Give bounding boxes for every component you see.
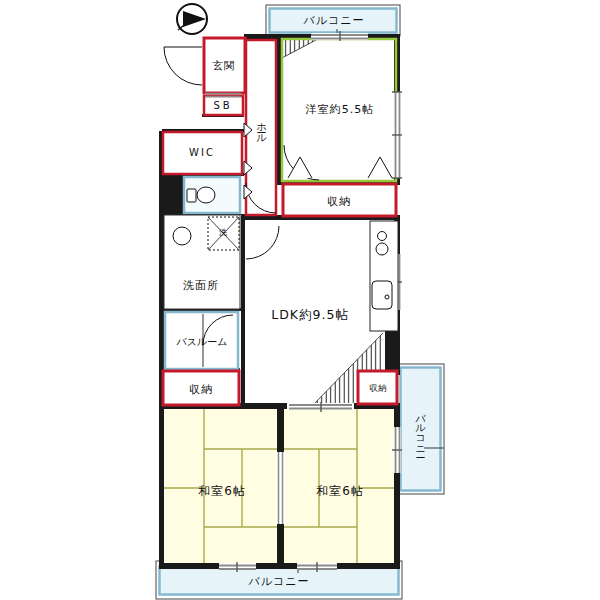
balcony-top-label: バルコニー [303, 15, 364, 26]
washroom-label: 洗面所 [183, 280, 219, 291]
hall-label: ホール [256, 116, 266, 139]
washer-label: 洗 [219, 229, 227, 237]
storage-west-label: 収納 [327, 196, 351, 207]
storage-ldk-label: 収納 [370, 384, 387, 393]
folding-closet-doors [288, 157, 392, 178]
balcony-right-label: バルコニー [415, 406, 425, 451]
compass-icon [177, 4, 207, 34]
genkan-label: 玄関 [213, 60, 236, 71]
japanese-room-left-label: 和室6帖 [198, 485, 246, 497]
bathroom-label: バスルーム [177, 337, 228, 347]
toilet-fixture [187, 187, 215, 203]
sb-label: SB [213, 101, 232, 111]
washroom-sink [173, 227, 191, 245]
western-room-label: 洋室約5.5帖 [306, 104, 375, 115]
japanese-room-right-label: 和室6帖 [316, 485, 364, 497]
entrance-door-arc [164, 47, 202, 85]
floorplan-drawing [0, 0, 600, 600]
floorplan-image: バルコニー 玄関 SB ホール 洋室約5.5帖 WIC 収納 洗 洗面所 LDK… [0, 0, 600, 600]
ldk-label: LDK約9.5帖 [271, 309, 349, 322]
storage-left-label: 収納 [189, 384, 213, 395]
balcony-bottom-label: バルコニー [248, 576, 309, 587]
wic-label: WIC [189, 148, 215, 158]
kitchen-counter [370, 221, 398, 331]
